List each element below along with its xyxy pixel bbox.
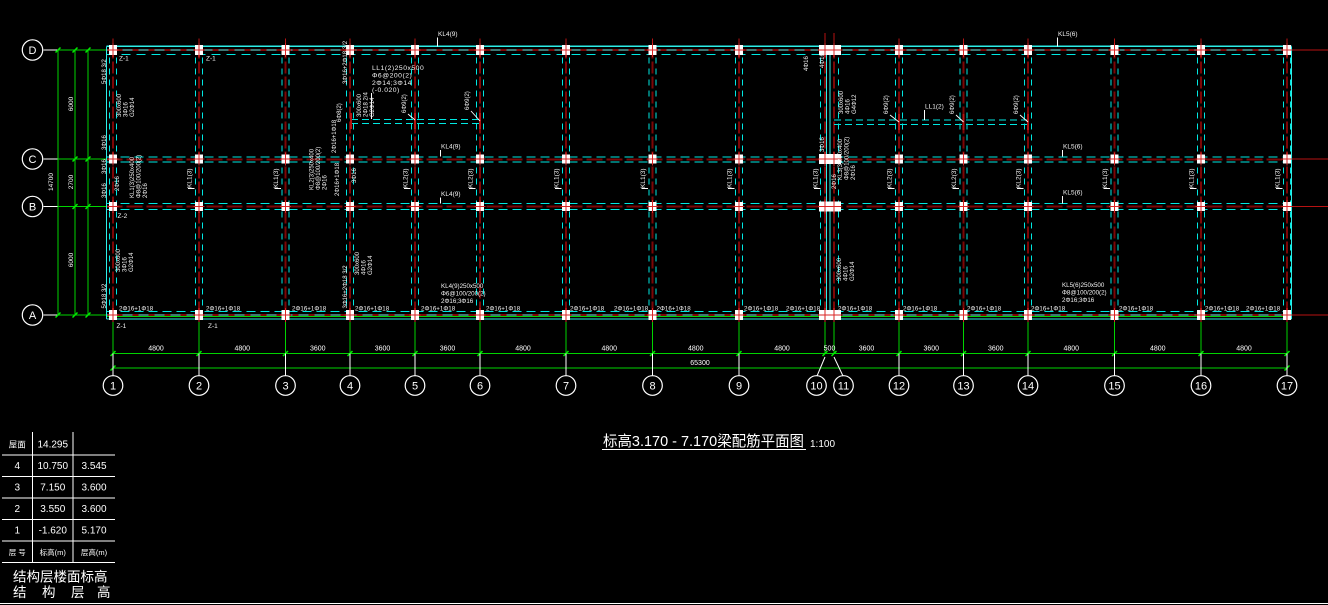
- svg-text:5Φ18 3/2: 5Φ18 3/2: [102, 283, 108, 308]
- svg-text:3: 3: [282, 380, 288, 392]
- svg-text:2Φ16: 2Φ16: [323, 175, 329, 190]
- svg-text:高: 高: [97, 584, 111, 600]
- svg-text:6Φ8(2): 6Φ8(2): [337, 103, 343, 122]
- svg-text:LL1(2): LL1(2): [925, 104, 944, 111]
- svg-text:5Φ18 3/2: 5Φ18 3/2: [102, 59, 108, 84]
- svg-text:2Φ16: 2Φ16: [832, 174, 838, 189]
- svg-text:KL2(3): KL2(3): [887, 168, 894, 188]
- svg-text:3600: 3600: [310, 346, 326, 353]
- svg-text:屋面: 屋面: [9, 440, 27, 450]
- svg-text:2Φ16: 2Φ16: [143, 183, 149, 198]
- svg-text:Z-2: Z-2: [118, 213, 128, 220]
- svg-text:1: 1: [110, 380, 116, 392]
- svg-text:B: B: [29, 202, 36, 214]
- svg-text:2Φ16;3Φ16: 2Φ16;3Φ16: [1062, 297, 1095, 304]
- svg-text:KL3(3)250x400: KL3(3)250x400: [838, 138, 844, 180]
- svg-text:G2Φ14: G2Φ14: [129, 252, 135, 272]
- svg-text:3600: 3600: [375, 346, 391, 353]
- svg-text:Φ6@200(2): Φ6@200(2): [372, 72, 412, 79]
- svg-text:3Φ16: 3Φ16: [124, 102, 130, 117]
- svg-text:10: 10: [810, 380, 822, 392]
- svg-text:3.550: 3.550: [40, 504, 65, 515]
- svg-text:G4Φ12: G4Φ12: [852, 94, 858, 114]
- svg-text:KL5(6): KL5(6): [1063, 190, 1083, 197]
- svg-text:16: 16: [1195, 380, 1207, 392]
- svg-text:G2Φ14: G2Φ14: [130, 97, 136, 117]
- svg-text:3Φ16+2Φ18 3/2: 3Φ16+2Φ18 3/2: [343, 40, 349, 84]
- svg-text:3Φ16: 3Φ16: [102, 159, 108, 174]
- svg-text:4Φ16: 4Φ16: [362, 260, 368, 275]
- svg-text:2Φ16+1Φ18: 2Φ16+1Φ18: [206, 306, 241, 313]
- svg-text:Φ8@100/200(2): Φ8@100/200(2): [1062, 289, 1107, 296]
- svg-text:2Φ16+1Φ18: 2Φ16+1Φ18: [1246, 306, 1281, 313]
- svg-text:KL1(3): KL1(3): [727, 168, 734, 188]
- svg-text:2Φ14;3Φ14: 2Φ14;3Φ14: [372, 80, 412, 87]
- svg-text:9: 9: [736, 380, 742, 392]
- svg-text:4Φ16: 4Φ16: [844, 266, 850, 281]
- svg-text:6Φ9(2): 6Φ9(2): [465, 91, 471, 110]
- svg-text:3600: 3600: [923, 346, 939, 353]
- svg-text:2: 2: [196, 380, 202, 392]
- svg-text:300x600: 300x600: [355, 251, 361, 275]
- svg-text:6000: 6000: [68, 96, 75, 111]
- svg-text:14700: 14700: [48, 173, 55, 191]
- svg-text:结构层楼面标高: 结构层楼面标高: [13, 569, 108, 585]
- svg-text:2Φ16+1Φ18: 2Φ16+1Φ18: [838, 306, 873, 313]
- svg-text:层: 层: [71, 585, 85, 600]
- svg-text:2Φ16+1Φ18: 2Φ16+1Φ18: [486, 306, 521, 313]
- svg-text:3Φ16: 3Φ16: [123, 257, 129, 272]
- svg-text:17: 17: [1281, 380, 1293, 392]
- svg-text:3Φ16: 3Φ16: [820, 137, 826, 152]
- svg-text:6Φ9(2): 6Φ9(2): [884, 95, 890, 114]
- svg-text:KL5(6)250x500: KL5(6)250x500: [1062, 282, 1105, 289]
- svg-text:Z-1: Z-1: [117, 323, 127, 330]
- svg-text:KL4(9): KL4(9): [438, 31, 458, 38]
- svg-text:300x600: 300x600: [357, 93, 363, 117]
- svg-text:2Φ16+1Φ18: 2Φ16+1Φ18: [332, 119, 338, 153]
- svg-text:标高3.170 - 7.170梁配筋平面图: 标高3.170 - 7.170梁配筋平面图: [603, 433, 804, 450]
- svg-text:3.600: 3.600: [81, 483, 106, 494]
- svg-text:Z-1: Z-1: [208, 323, 218, 330]
- svg-text:-1.620: -1.620: [39, 526, 68, 537]
- svg-text:12: 12: [893, 380, 905, 392]
- svg-text:4800: 4800: [601, 346, 617, 353]
- svg-text:2Φ16+1Φ18: 2Φ16+1Φ18: [355, 306, 390, 313]
- svg-text:4800: 4800: [688, 346, 704, 353]
- svg-text:2Φ16+1Φ18: 2Φ16+1Φ18: [657, 306, 692, 313]
- svg-text:2Φ16+1Φ18: 2Φ16+1Φ18: [614, 306, 649, 313]
- svg-text:KL1(3): KL1(3): [1275, 168, 1282, 188]
- svg-text:4Φ16: 4Φ16: [820, 53, 826, 68]
- svg-text:7.150: 7.150: [40, 483, 65, 494]
- svg-text:5: 5: [412, 380, 418, 392]
- svg-text:标高(m): 标高(m): [40, 547, 67, 557]
- svg-text:KL1(3): KL1(3): [1189, 168, 1196, 188]
- svg-text:KL1(3): KL1(3): [640, 168, 647, 188]
- svg-text:3Φ16: 3Φ16: [352, 168, 358, 183]
- svg-text:4: 4: [347, 380, 353, 392]
- svg-text:4800: 4800: [148, 346, 164, 353]
- svg-text:4Φ16: 4Φ16: [846, 99, 852, 114]
- svg-text:2Φ16+1Φ18: 2Φ16+1Φ18: [903, 306, 938, 313]
- svg-text:KL4(9): KL4(9): [441, 191, 461, 198]
- svg-text:G2Φ14: G2Φ14: [368, 255, 374, 275]
- svg-text:2Φ16+1Φ18: 2Φ16+1Φ18: [1205, 306, 1240, 313]
- svg-text:3Φ16: 3Φ16: [102, 135, 108, 150]
- svg-text:4800: 4800: [1150, 346, 1166, 353]
- svg-text:C: C: [29, 154, 37, 166]
- svg-text:4800: 4800: [1236, 346, 1252, 353]
- svg-text:2Φ16: 2Φ16: [851, 165, 857, 180]
- svg-text:2Φ16+1Φ18: 2Φ16+1Φ18: [292, 306, 327, 313]
- svg-text:2Φ16+1Φ18: 2Φ16+1Φ18: [570, 306, 605, 313]
- svg-text:KL1(3): KL1(3): [187, 168, 194, 188]
- svg-text:2Φ16+1Φ18: 2Φ16+1Φ18: [421, 306, 456, 313]
- svg-text:6Φ9(2): 6Φ9(2): [402, 94, 408, 113]
- svg-text:2Φ16+1Φ18: 2Φ16+1Φ18: [786, 306, 821, 313]
- svg-text:300x600: 300x600: [839, 90, 845, 114]
- svg-text:14: 14: [1022, 380, 1034, 392]
- svg-text:Φ8@100/200(2): Φ8@100/200(2): [845, 137, 851, 180]
- svg-text:KL5(6): KL5(6): [1063, 144, 1083, 151]
- svg-text:Z-1: Z-1: [206, 56, 216, 63]
- svg-text:(-0.020): (-0.020): [372, 87, 400, 94]
- svg-text:11: 11: [838, 380, 849, 392]
- svg-text:KL2(3): KL2(3): [951, 168, 958, 188]
- svg-text:KL2(3): KL2(3): [403, 168, 410, 188]
- svg-text:6Φ9(2): 6Φ9(2): [1014, 95, 1020, 114]
- svg-text:KL2(3): KL2(3): [1016, 168, 1023, 188]
- svg-text:2Φ16+1Φ18: 2Φ16+1Φ18: [1119, 306, 1154, 313]
- svg-text:KL1(3): KL1(3): [1102, 168, 1109, 188]
- svg-text:KL2(3): KL2(3): [468, 168, 475, 188]
- svg-text:2Φ16+1Φ18: 2Φ16+1Φ18: [967, 306, 1002, 313]
- svg-text:2Φ16;3Φ16: 2Φ16;3Φ16: [441, 298, 474, 305]
- svg-text:KL4(9)250x500: KL4(9)250x500: [441, 283, 484, 290]
- svg-text:6000: 6000: [68, 252, 75, 267]
- svg-text:3.545: 3.545: [81, 461, 106, 472]
- svg-text:2Φ18 2/4: 2Φ18 2/4: [364, 92, 370, 117]
- svg-text:Φ6@100/200(2): Φ6@100/200(2): [441, 290, 486, 297]
- svg-text:6Φ9(2): 6Φ9(2): [950, 95, 956, 114]
- svg-text:KL5(6): KL5(6): [1058, 31, 1078, 38]
- svg-text:2Φ16+1Φ18: 2Φ16+1Φ18: [744, 306, 779, 313]
- svg-text:7: 7: [563, 380, 569, 392]
- svg-text:8: 8: [649, 380, 655, 392]
- svg-text:4Φ16: 4Φ16: [804, 56, 810, 71]
- svg-text:4: 4: [14, 461, 20, 472]
- svg-text:300x600: 300x600: [116, 248, 122, 272]
- svg-text:65300: 65300: [690, 360, 710, 367]
- svg-text:结: 结: [13, 585, 27, 600]
- svg-text:2700: 2700: [68, 174, 75, 189]
- svg-text:1:100: 1:100: [810, 439, 835, 450]
- svg-text:300x600: 300x600: [117, 93, 123, 117]
- svg-text:2Φ16: 2Φ16: [115, 176, 121, 191]
- svg-text:6: 6: [477, 380, 483, 392]
- svg-text:14.295: 14.295: [37, 440, 68, 451]
- svg-text:KL4(9): KL4(9): [441, 144, 461, 151]
- svg-text:3600: 3600: [859, 346, 875, 353]
- svg-text:Z-1: Z-1: [119, 56, 129, 63]
- svg-text:KL1(3)250x400: KL1(3)250x400: [130, 156, 136, 198]
- svg-text:G2Φ14: G2Φ14: [370, 97, 376, 117]
- svg-text:Φ8@100/200(2): Φ8@100/200(2): [316, 147, 322, 190]
- svg-text:3600: 3600: [440, 346, 456, 353]
- svg-text:LL1(2)250x500: LL1(2)250x500: [372, 65, 424, 72]
- svg-text:G2Φ14: G2Φ14: [850, 261, 856, 281]
- svg-text:2Φ16+1Φ18: 2Φ16+1Φ18: [335, 162, 341, 196]
- svg-text:D: D: [29, 45, 37, 57]
- svg-text:10.750: 10.750: [37, 461, 68, 472]
- svg-text:Φ8@100/200(2): Φ8@100/200(2): [137, 155, 143, 198]
- svg-text:4800: 4800: [774, 346, 790, 353]
- svg-text:3: 3: [14, 483, 20, 494]
- svg-text:层高(m): 层高(m): [81, 547, 108, 557]
- svg-text:KL1(3): KL1(3): [273, 168, 280, 188]
- svg-text:KL1(3): KL1(3): [554, 168, 561, 188]
- svg-text:13: 13: [957, 380, 969, 392]
- svg-text:KL1(3): KL1(3): [813, 168, 820, 188]
- svg-text:层 号: 层 号: [9, 548, 26, 557]
- svg-text:2Φ16+1Φ18: 2Φ16+1Φ18: [1031, 306, 1066, 313]
- svg-text:500: 500: [824, 346, 836, 353]
- svg-text:KL2(3)250x400: KL2(3)250x400: [310, 148, 316, 190]
- svg-text:4800: 4800: [234, 346, 250, 353]
- svg-text:300x600: 300x600: [837, 257, 843, 281]
- svg-text:A: A: [29, 310, 37, 322]
- svg-text:3.600: 3.600: [81, 504, 106, 515]
- svg-text:4800: 4800: [1063, 346, 1079, 353]
- svg-text:3Φ16: 3Φ16: [102, 183, 108, 198]
- svg-text:15: 15: [1108, 380, 1120, 392]
- svg-text:3Φ16+2Φ18 3/2: 3Φ16+2Φ18 3/2: [343, 265, 349, 309]
- svg-text:2: 2: [14, 504, 20, 515]
- svg-text:2Φ16+1Φ18: 2Φ16+1Φ18: [119, 306, 154, 313]
- svg-text:1: 1: [14, 526, 20, 537]
- svg-text:3600: 3600: [988, 346, 1004, 353]
- svg-text:构: 构: [42, 585, 56, 600]
- svg-text:4800: 4800: [515, 346, 531, 353]
- svg-text:5.170: 5.170: [81, 526, 106, 537]
